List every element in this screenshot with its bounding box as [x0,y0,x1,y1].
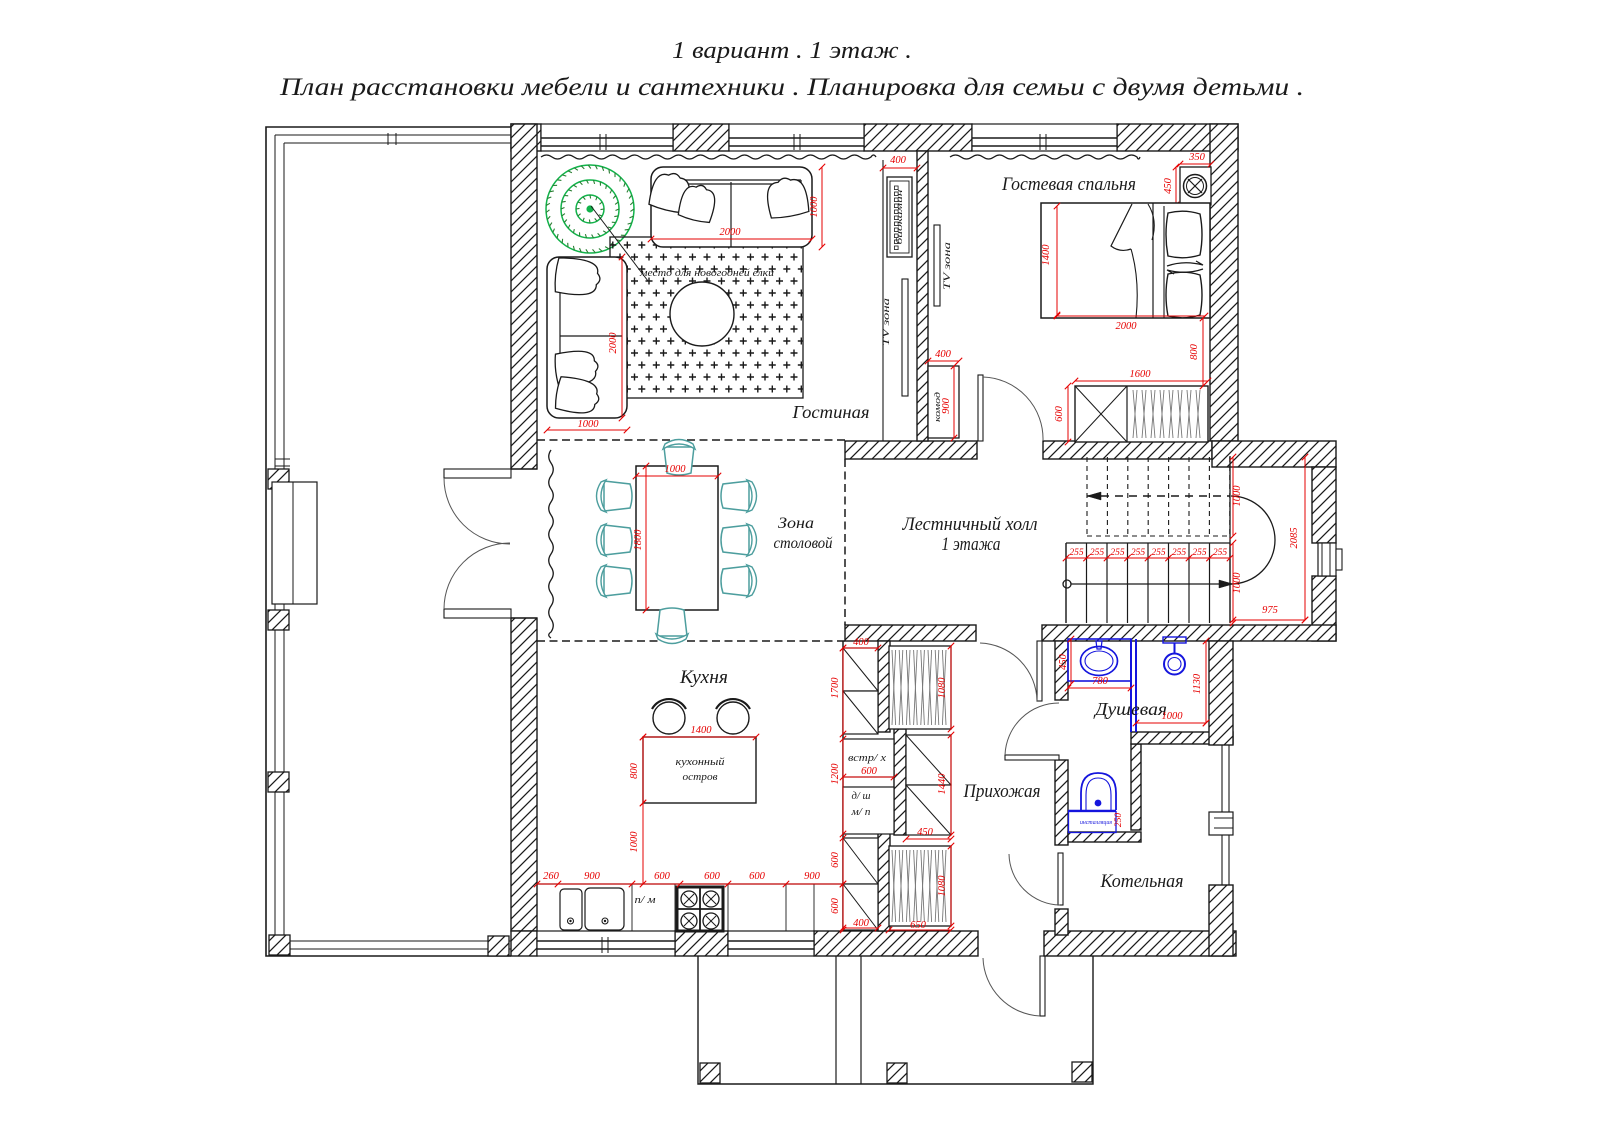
svg-text:600: 600 [830,897,841,914]
svg-text:1440: 1440 [937,773,948,795]
svg-text:600: 600 [749,871,766,882]
svg-text:400: 400 [853,637,870,648]
svg-text:Прихожая: Прихожая [963,781,1041,802]
svg-text:255: 255 [1192,548,1207,558]
svg-text:400: 400 [935,349,952,360]
svg-text:1000: 1000 [578,419,600,430]
svg-text:450: 450 [1058,653,1069,670]
svg-text:1 вариант . 1 этаж .: 1 вариант . 1 этаж . [672,38,912,64]
svg-text:2000: 2000 [608,332,619,354]
svg-text:1000: 1000 [809,196,820,218]
svg-text:400: 400 [853,918,870,929]
svg-text:1000: 1000 [665,464,687,475]
svg-text:биокамин: биокамин [894,190,904,245]
svg-text:1080: 1080 [937,677,948,699]
svg-text:255: 255 [1131,548,1146,558]
svg-text:900: 900 [804,871,821,882]
svg-text:Гостиная: Гостиная [791,402,869,422]
svg-text:600: 600 [861,766,878,777]
svg-text:встр/ х: встр/ х [848,753,887,764]
svg-text:2000: 2000 [1116,321,1138,332]
svg-text:600: 600 [654,871,671,882]
svg-text:1130: 1130 [1192,673,1203,694]
svg-text:600: 600 [1054,405,1065,422]
svg-text:кухонный: кухонный [676,757,725,768]
svg-text:Лестничный холл: Лестничный холл [902,514,1038,535]
svg-text:250: 250 [1114,813,1124,828]
svg-text:1800: 1800 [633,529,644,551]
svg-text:600: 600 [830,851,841,868]
svg-text:255: 255 [1110,548,1125,558]
svg-text:Зона: Зона [778,515,814,532]
svg-text:255: 255 [1213,548,1228,558]
svg-text:255: 255 [1151,548,1166,558]
svg-text:1600: 1600 [1130,369,1152,380]
svg-text:д/ ш: д/ ш [852,791,871,802]
svg-text:975: 975 [1262,605,1278,616]
svg-text:1200: 1200 [830,763,841,785]
svg-text:780: 780 [1092,676,1109,687]
svg-text:Гостевая спальня: Гостевая спальня [1001,174,1136,195]
svg-text:План расстановки мебели и сант: План расстановки мебели и сантехники . П… [279,74,1304,101]
svg-text:TV зона: TV зона [943,242,953,290]
svg-text:400: 400 [890,155,907,166]
svg-text:450: 450 [917,827,934,838]
svg-text:1000: 1000 [1232,485,1243,507]
svg-text:255: 255 [1172,548,1187,558]
svg-text:TV зона: TV зона [882,298,892,346]
svg-text:1700: 1700 [830,677,841,699]
svg-text:800: 800 [1189,343,1200,360]
svg-text:м/ п: м/ п [850,807,870,818]
svg-text:350: 350 [1188,152,1206,163]
svg-text:столовой: столовой [774,535,833,552]
svg-text:1400: 1400 [691,725,713,736]
svg-text:остров: остров [683,772,719,783]
svg-text:2000: 2000 [720,227,742,238]
svg-text:2085: 2085 [1289,528,1300,549]
svg-text:1 этажа: 1 этажа [942,534,1001,555]
svg-text:1000: 1000 [1232,572,1243,594]
svg-text:1000: 1000 [629,831,640,853]
svg-text:900: 900 [941,397,952,414]
svg-text:Котельная: Котельная [1100,871,1184,892]
svg-text:1000: 1000 [1162,711,1184,722]
svg-text:инсталляция: инсталляция [1080,819,1112,826]
svg-text:260: 260 [543,871,560,882]
svg-text:п/ м: п/ м [635,895,657,906]
svg-text:900: 900 [584,871,601,882]
svg-text:1080: 1080 [937,875,948,897]
svg-text:600: 600 [704,871,721,882]
svg-text:650: 650 [910,920,927,931]
svg-text:800: 800 [629,762,640,779]
svg-text:Кухня: Кухня [679,667,728,688]
svg-text:450: 450 [1163,177,1174,194]
svg-text:255: 255 [1090,548,1105,558]
svg-text:255: 255 [1069,548,1084,558]
svg-text:1400: 1400 [1041,244,1052,266]
svg-text:Душевая: Душевая [1093,699,1167,719]
